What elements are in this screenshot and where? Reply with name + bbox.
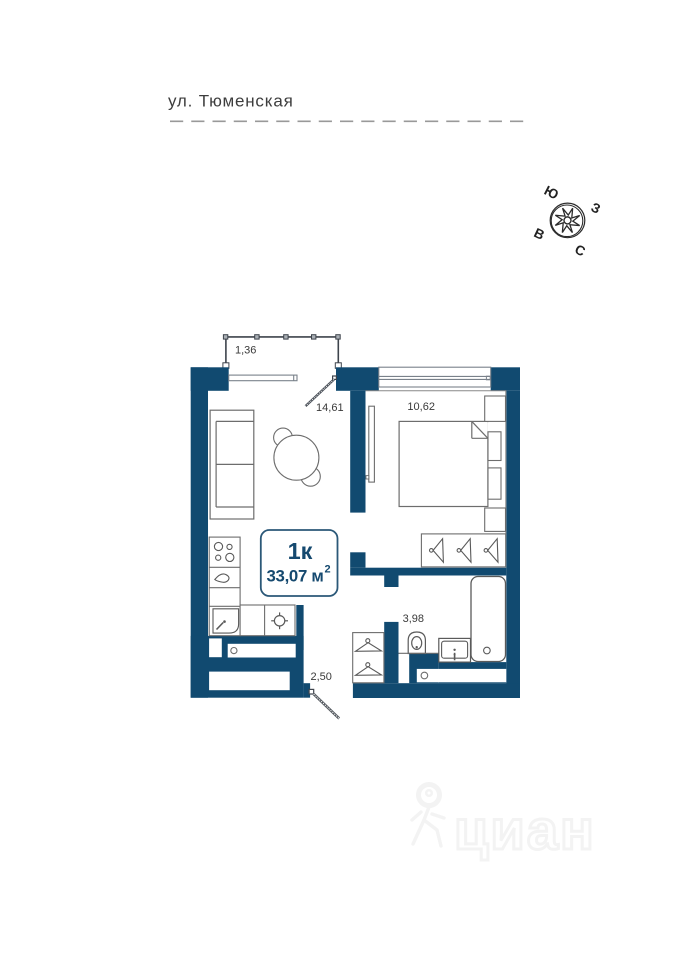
svg-text:циан: циан	[454, 798, 596, 861]
svg-text:33,07 м: 33,07 м	[267, 567, 324, 586]
svg-text:ул. Тюменская: ул. Тюменская	[168, 92, 294, 111]
svg-text:2,50: 2,50	[310, 671, 331, 683]
svg-text:14,61: 14,61	[316, 402, 344, 414]
svg-text:3,98: 3,98	[403, 613, 424, 625]
svg-text:2: 2	[325, 564, 331, 576]
svg-text:10,62: 10,62	[407, 401, 435, 413]
svg-text:1,36: 1,36	[235, 345, 256, 357]
svg-text:1к: 1к	[288, 538, 313, 564]
